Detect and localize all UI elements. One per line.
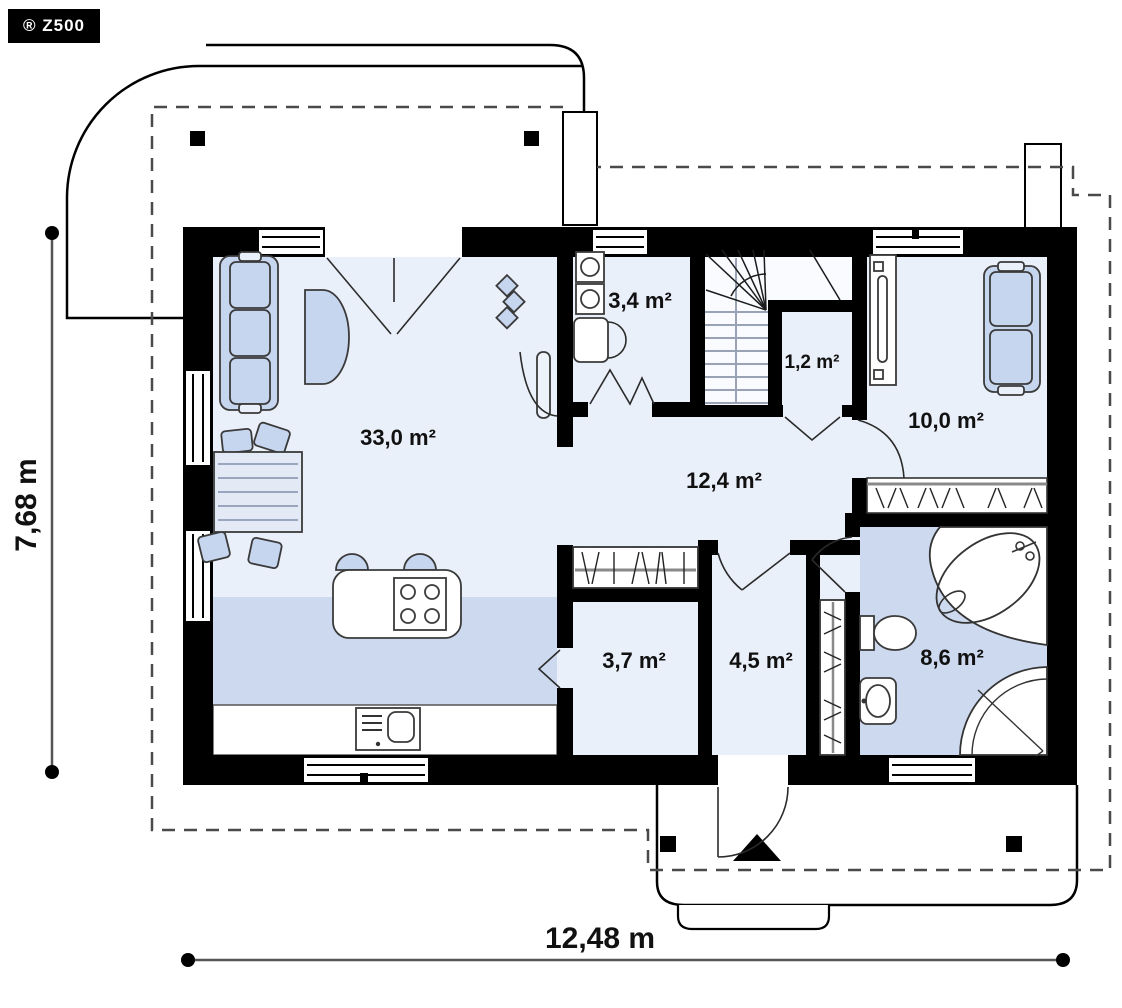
floor-plan-drawing: 7,68 m 12,48 m 33,0 m² 3,4 m² 1,2 m² 10,… (0, 0, 1122, 1008)
window (258, 229, 324, 255)
kitchen-sink-unit (356, 708, 420, 750)
height-dimension-label: 7,68 m (10, 458, 43, 551)
room-label-closet: 1,2 m² (785, 352, 840, 373)
room-label-hall: 12,4 m² (686, 468, 762, 493)
armchair (305, 290, 349, 384)
window (872, 229, 964, 255)
sofa (220, 252, 278, 413)
room-label-utility: 3,4 m² (608, 288, 672, 313)
window (185, 370, 211, 466)
room-label-vestibule: 4,5 m² (729, 648, 793, 673)
window (888, 757, 976, 783)
room-label-pantry: 3,7 m² (602, 648, 666, 673)
floor-plan-page: ® Z500 (0, 0, 1122, 1008)
bedroom-wardrobe (870, 255, 896, 385)
porch-post (1006, 836, 1022, 852)
sink (860, 678, 896, 724)
z500-logo: ® Z500 (8, 9, 100, 43)
porch-post (660, 836, 676, 852)
terrace-post (190, 131, 205, 146)
room-label-bedroom: 10,0 m² (908, 408, 984, 433)
entrance-step (678, 905, 829, 929)
vestibule-closet (820, 600, 845, 755)
room-label-living: 33,0 m² (360, 425, 436, 450)
bedroom-closet-strip (867, 478, 1047, 513)
width-dimension-label: 12,48 m (545, 922, 655, 955)
window (303, 757, 429, 783)
terrace-post (524, 131, 539, 146)
toilet (860, 616, 916, 650)
room-label-bathroom: 8,6 m² (920, 645, 984, 670)
bedroom-sofa (984, 262, 1040, 395)
hall-wardrobe (573, 547, 698, 588)
